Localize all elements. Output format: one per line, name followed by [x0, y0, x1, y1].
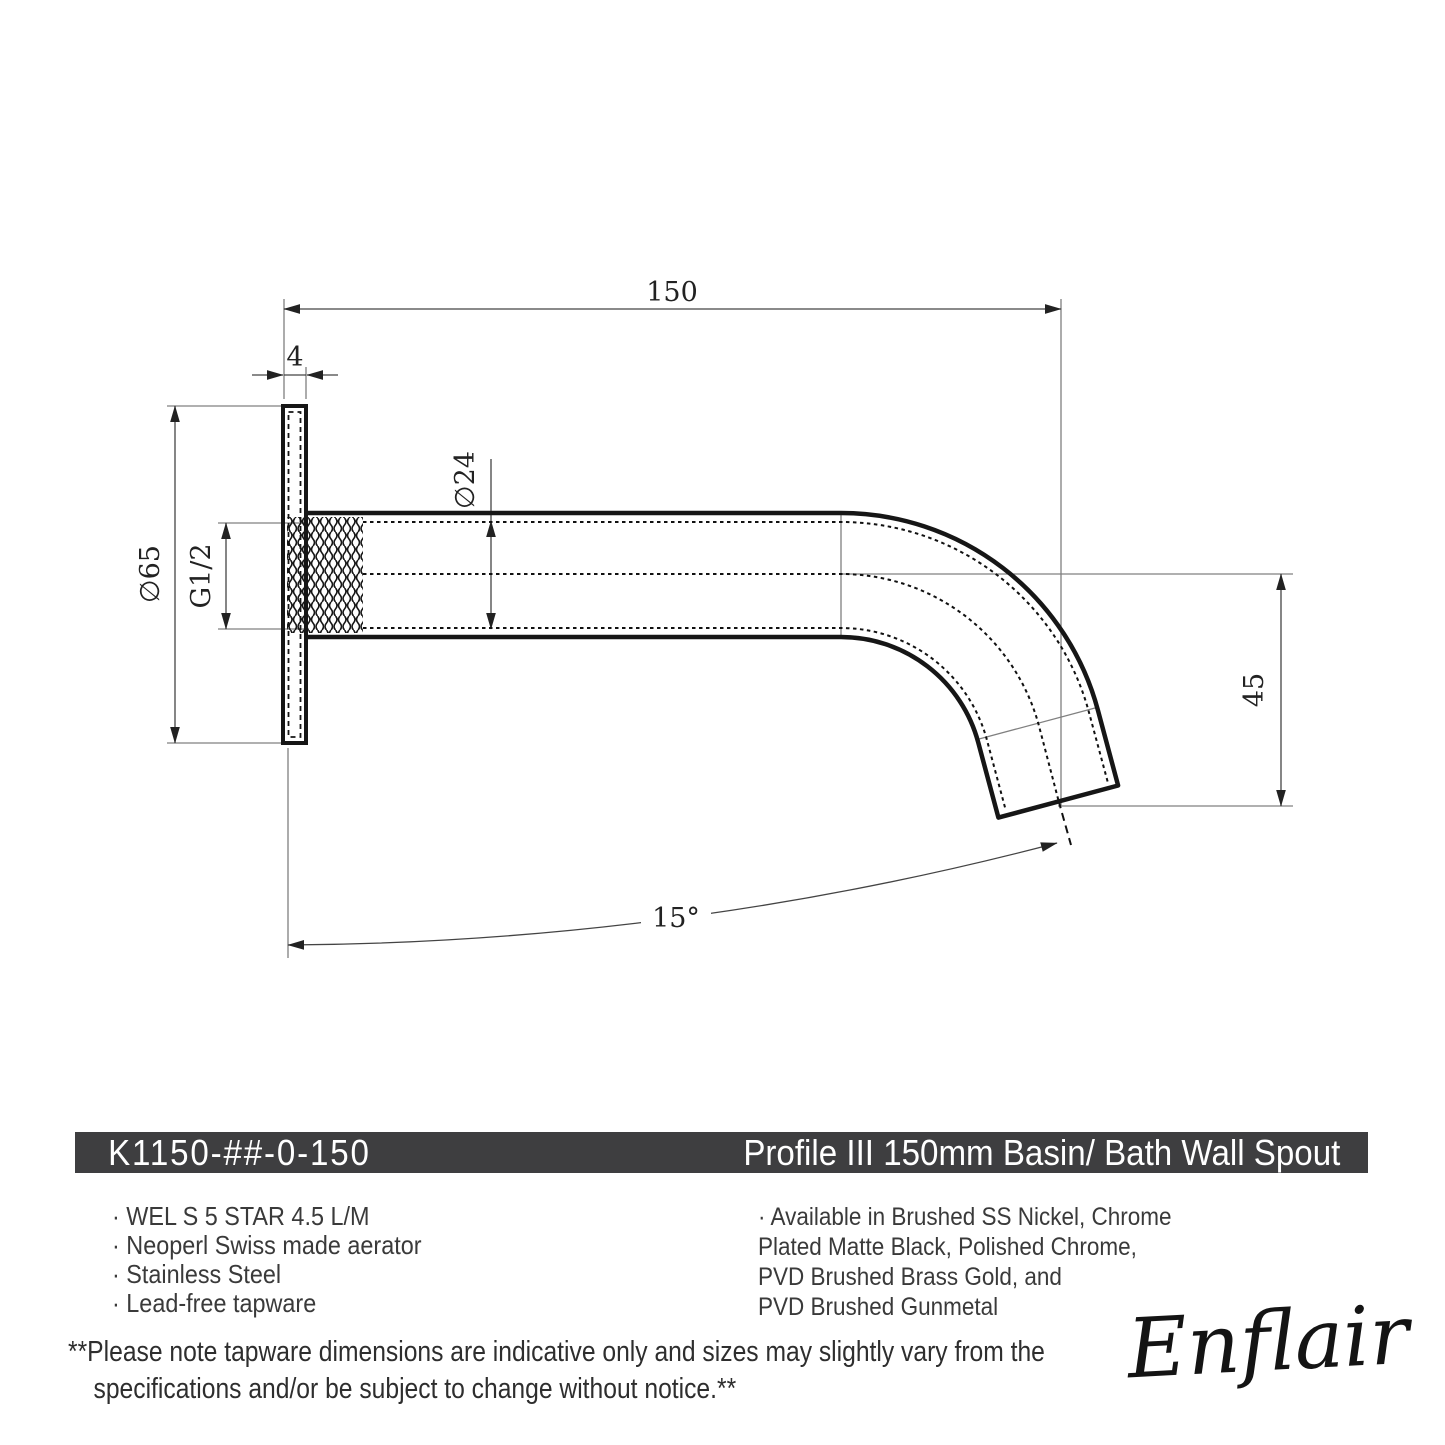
product-code: K1150-##-0-150	[75, 1132, 371, 1174]
feature-item: · Stainless Steel	[112, 1260, 422, 1289]
thread-hatch	[287, 517, 363, 633]
dim-label-flange-diameter: ∅65	[135, 545, 166, 603]
technical-drawing: 150 4 ∅24 ∅65 G1/2 45 15°	[0, 0, 1445, 1100]
dim-label-spout-diameter: ∅24	[450, 451, 481, 509]
product-name: Profile III 150mm Basin/ Bath Wall Spout	[743, 1132, 1368, 1174]
feature-list: · WEL S 5 STAR 4.5 L/M · Neoperl Swiss m…	[112, 1202, 422, 1318]
spout-body	[283, 406, 1118, 845]
centerline-dotted	[363, 574, 1059, 801]
dim-label-drop: 45	[1239, 673, 1270, 707]
finish-line: PVD Brushed Brass Gold, and	[758, 1262, 1172, 1292]
finish-line: PVD Brushed Gunmetal	[758, 1292, 1172, 1322]
title-bar: K1150-##-0-150 Profile III 150mm Basin/ …	[75, 1132, 1368, 1173]
centerline-extension-dashed	[1059, 801, 1072, 846]
feature-item: · Lead-free tapware	[112, 1289, 422, 1318]
disclaimer-line: **Please note tapware dimensions are ind…	[68, 1334, 1045, 1371]
disclaimer-line: specifications and/or be subject to chan…	[68, 1371, 1045, 1408]
brand-logo: Enflair	[1125, 1265, 1412, 1419]
dim-label-length: 150	[646, 277, 698, 308]
dim-label-thread: G1/2	[186, 543, 217, 608]
dim-label-angle: 15°	[652, 903, 700, 934]
finish-line: Plated Matte Black, Polished Chrome,	[758, 1232, 1172, 1262]
spec-sheet: 150 4 ∅24 ∅65 G1/2 45 15° K1150-##-0-150…	[0, 0, 1445, 1445]
feature-item: · Neoperl Swiss made aerator	[112, 1231, 422, 1260]
finish-line: · Available in Brushed SS Nickel, Chrome	[758, 1202, 1172, 1232]
feature-item: · WEL S 5 STAR 4.5 L/M	[112, 1202, 422, 1231]
disclaimer: **Please note tapware dimensions are ind…	[68, 1334, 1045, 1408]
dim-label-plate-thickness: 4	[286, 342, 303, 373]
finish-list: · Available in Brushed SS Nickel, Chrome…	[758, 1202, 1172, 1322]
